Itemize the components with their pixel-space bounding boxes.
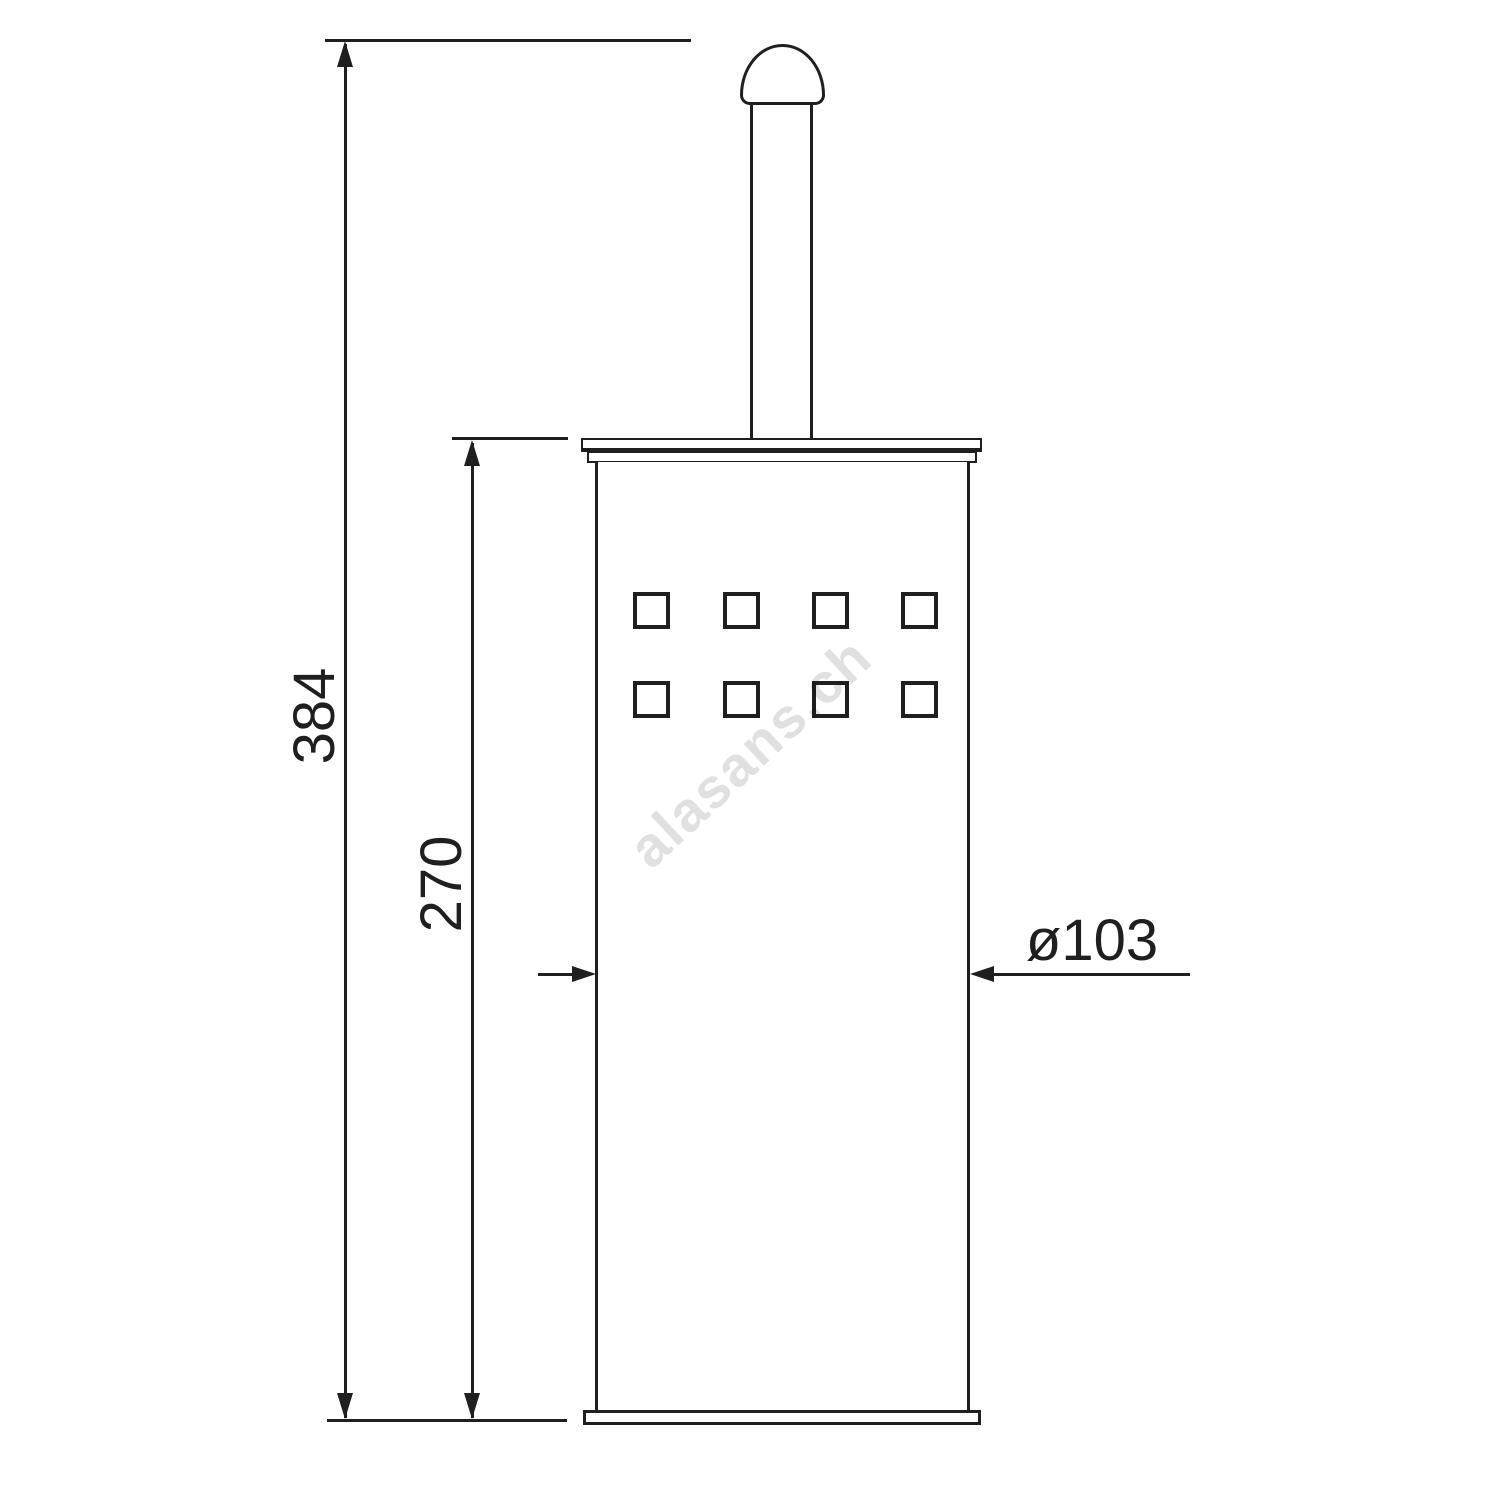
arrowhead-up-body	[464, 440, 480, 466]
arrowhead-right-diameter	[572, 966, 596, 982]
extension-line-top-overall	[325, 39, 691, 42]
perforation-square	[633, 592, 670, 629]
canister-base	[583, 1410, 981, 1425]
lid-plate	[581, 438, 982, 452]
extension-line-bottom	[327, 1419, 567, 1422]
arrowhead-down-body	[464, 1393, 480, 1419]
perforation-square	[723, 592, 760, 629]
arrowhead-up-overall	[337, 41, 353, 67]
brush-handle-knob	[740, 44, 825, 105]
technical-drawing-canvas: 384 270 ø103 alasans.ch	[0, 0, 1500, 1500]
dimension-label-total-height: 384	[286, 668, 344, 765]
brush-handle-stem	[750, 102, 813, 442]
arrowhead-left-diameter	[970, 966, 994, 982]
arrowhead-down-overall	[337, 1393, 353, 1419]
perforation-square	[633, 681, 670, 718]
diameter-leader-line-right	[992, 973, 1190, 976]
perforation-square	[901, 681, 938, 718]
perforation-square	[812, 592, 849, 629]
perforation-square	[901, 592, 938, 629]
dimension-label-body-height: 270	[413, 836, 471, 933]
dimension-label-diameter: ø103	[1026, 912, 1158, 970]
